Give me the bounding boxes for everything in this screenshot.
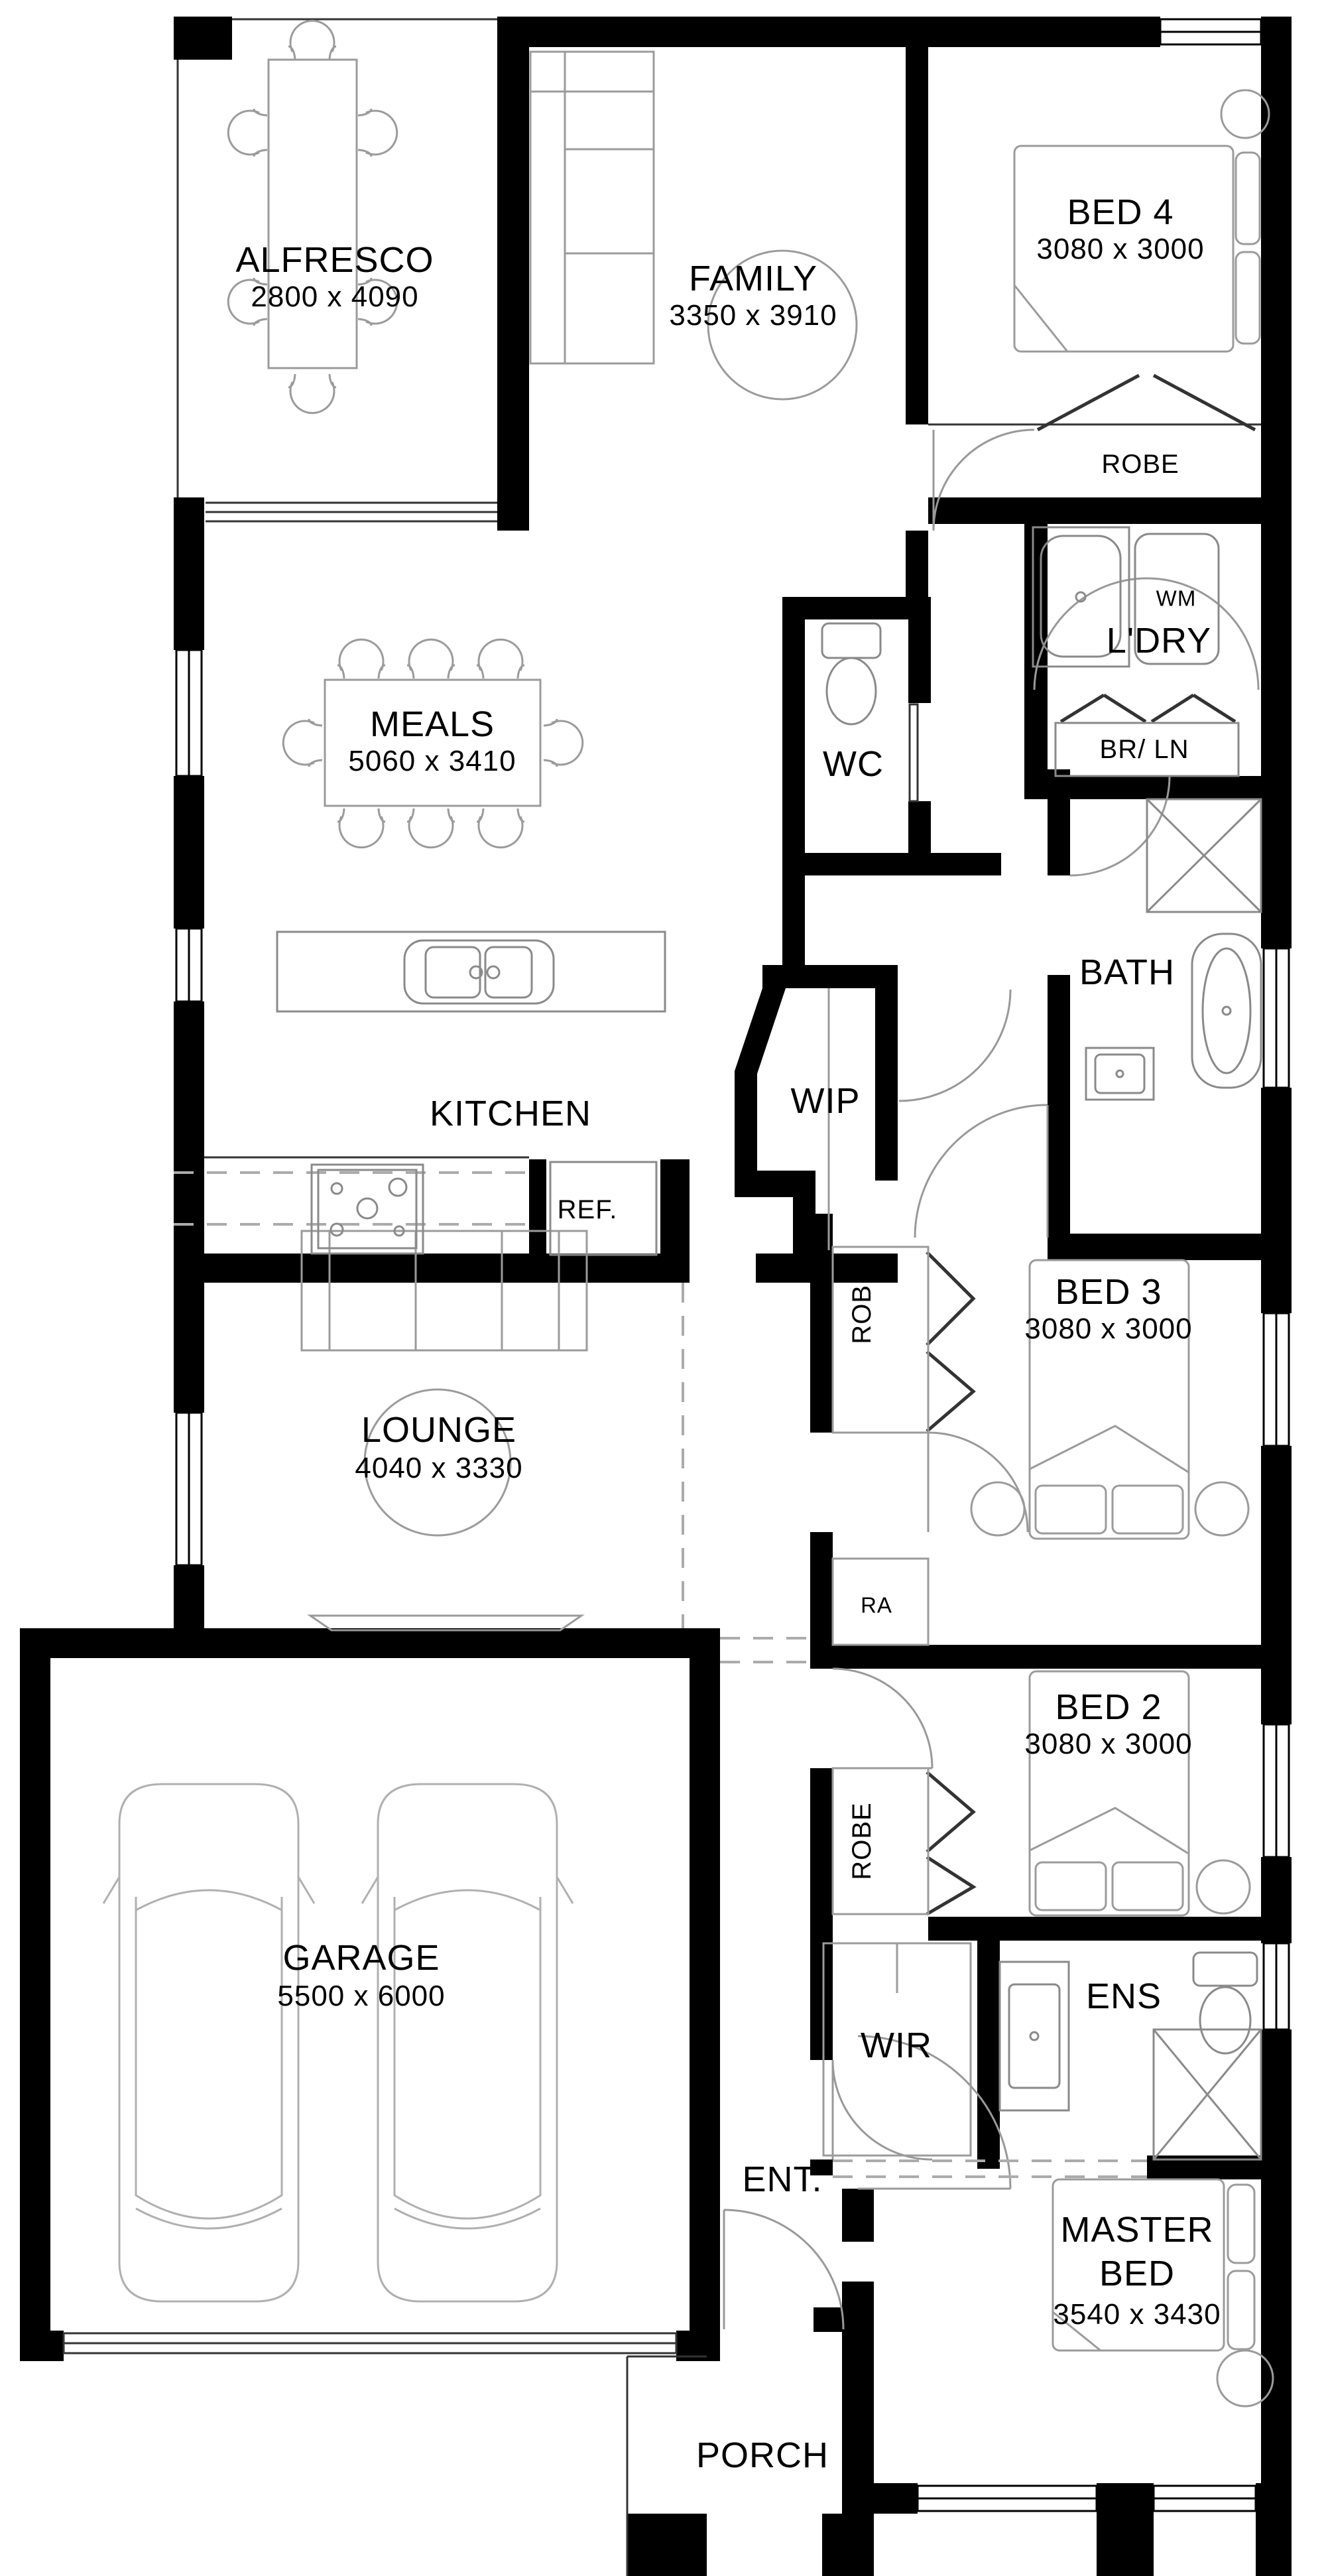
label-fridge: REF. (558, 1196, 618, 1223)
room-dims-garage: 5500 x 6000 (277, 1982, 445, 2011)
room-label-porch: PORCH (696, 2437, 829, 2473)
room-label-wc: WC (823, 746, 884, 782)
label-robe-bed2: ROBE (849, 1802, 875, 1880)
car-left (103, 1784, 314, 2301)
lounge-tv-unit (310, 1616, 581, 1630)
room-dims-bed3: 3080 x 3000 (1024, 1315, 1192, 1344)
room-dims-bed2: 3080 x 3000 (1024, 1730, 1192, 1759)
room-dims-lounge: 4040 x 3330 (355, 1454, 522, 1483)
bathtub (1192, 934, 1261, 1088)
room-label-meals: MEALS (370, 706, 495, 742)
room-label-bath: BATH (1079, 954, 1175, 990)
door-leaves (927, 375, 1255, 1914)
family-sofa (530, 52, 654, 363)
ens-vanity (1000, 1962, 1069, 2110)
kitchen-island (277, 932, 665, 1011)
room-label-ent: ENT. (742, 2161, 822, 2197)
bath-vanity (1086, 1048, 1154, 1100)
room-label-garage: GARAGE (282, 1940, 440, 1976)
room-label-bed2: BED 2 (1055, 1689, 1162, 1725)
wc-toilet (822, 623, 880, 724)
room-label-bed3: BED 3 (1055, 1274, 1162, 1310)
room-label-master-line2: BED (1099, 2256, 1175, 2291)
room-label-ldry: L'DRY (1107, 623, 1211, 659)
room-label-alfresco: ALFRESCO (235, 242, 434, 278)
label-robe-bed3: ROBE (849, 1266, 875, 1344)
room-label-wip: WIP (791, 1083, 861, 1119)
room-label-master-line1: MASTER (1060, 2212, 1213, 2248)
label-br-ln: BR/ LN (1100, 736, 1189, 763)
room-dims-master: 3540 x 3430 (1053, 2300, 1221, 2329)
cooktop (312, 1165, 423, 1254)
room-label-bed4: BED 4 (1067, 194, 1174, 230)
label-washing-machine: WM (1156, 588, 1197, 610)
room-dims-family: 3350 x 3910 (669, 301, 837, 330)
room-label-kitchen: KITCHEN (430, 1096, 591, 1131)
label-robe-bed4: ROBE (1101, 451, 1179, 478)
bath-shower (1147, 799, 1261, 912)
floor-plan: ALFRESCO 2800 x 4090 FAMILY 3350 x 3910 … (0, 0, 1326, 2576)
room-dims-bed4: 3080 x 3000 (1036, 235, 1204, 264)
room-label-family: FAMILY (689, 261, 817, 296)
car-right (362, 1784, 573, 2301)
room-label-wir: WIR (861, 2028, 932, 2063)
ens-shower (1154, 2029, 1261, 2159)
room-label-lounge: LOUNGE (361, 1412, 516, 1448)
dashed-lines (174, 1173, 1147, 2177)
ens-toilet (1193, 1953, 1257, 2053)
room-label-ens: ENS (1086, 1978, 1162, 2014)
alfresco-dining-table (228, 21, 396, 413)
label-return-air: RA (861, 1594, 892, 1616)
room-dims-alfresco: 2800 x 4090 (251, 283, 418, 312)
room-dims-meals: 5060 x 3410 (348, 747, 516, 776)
